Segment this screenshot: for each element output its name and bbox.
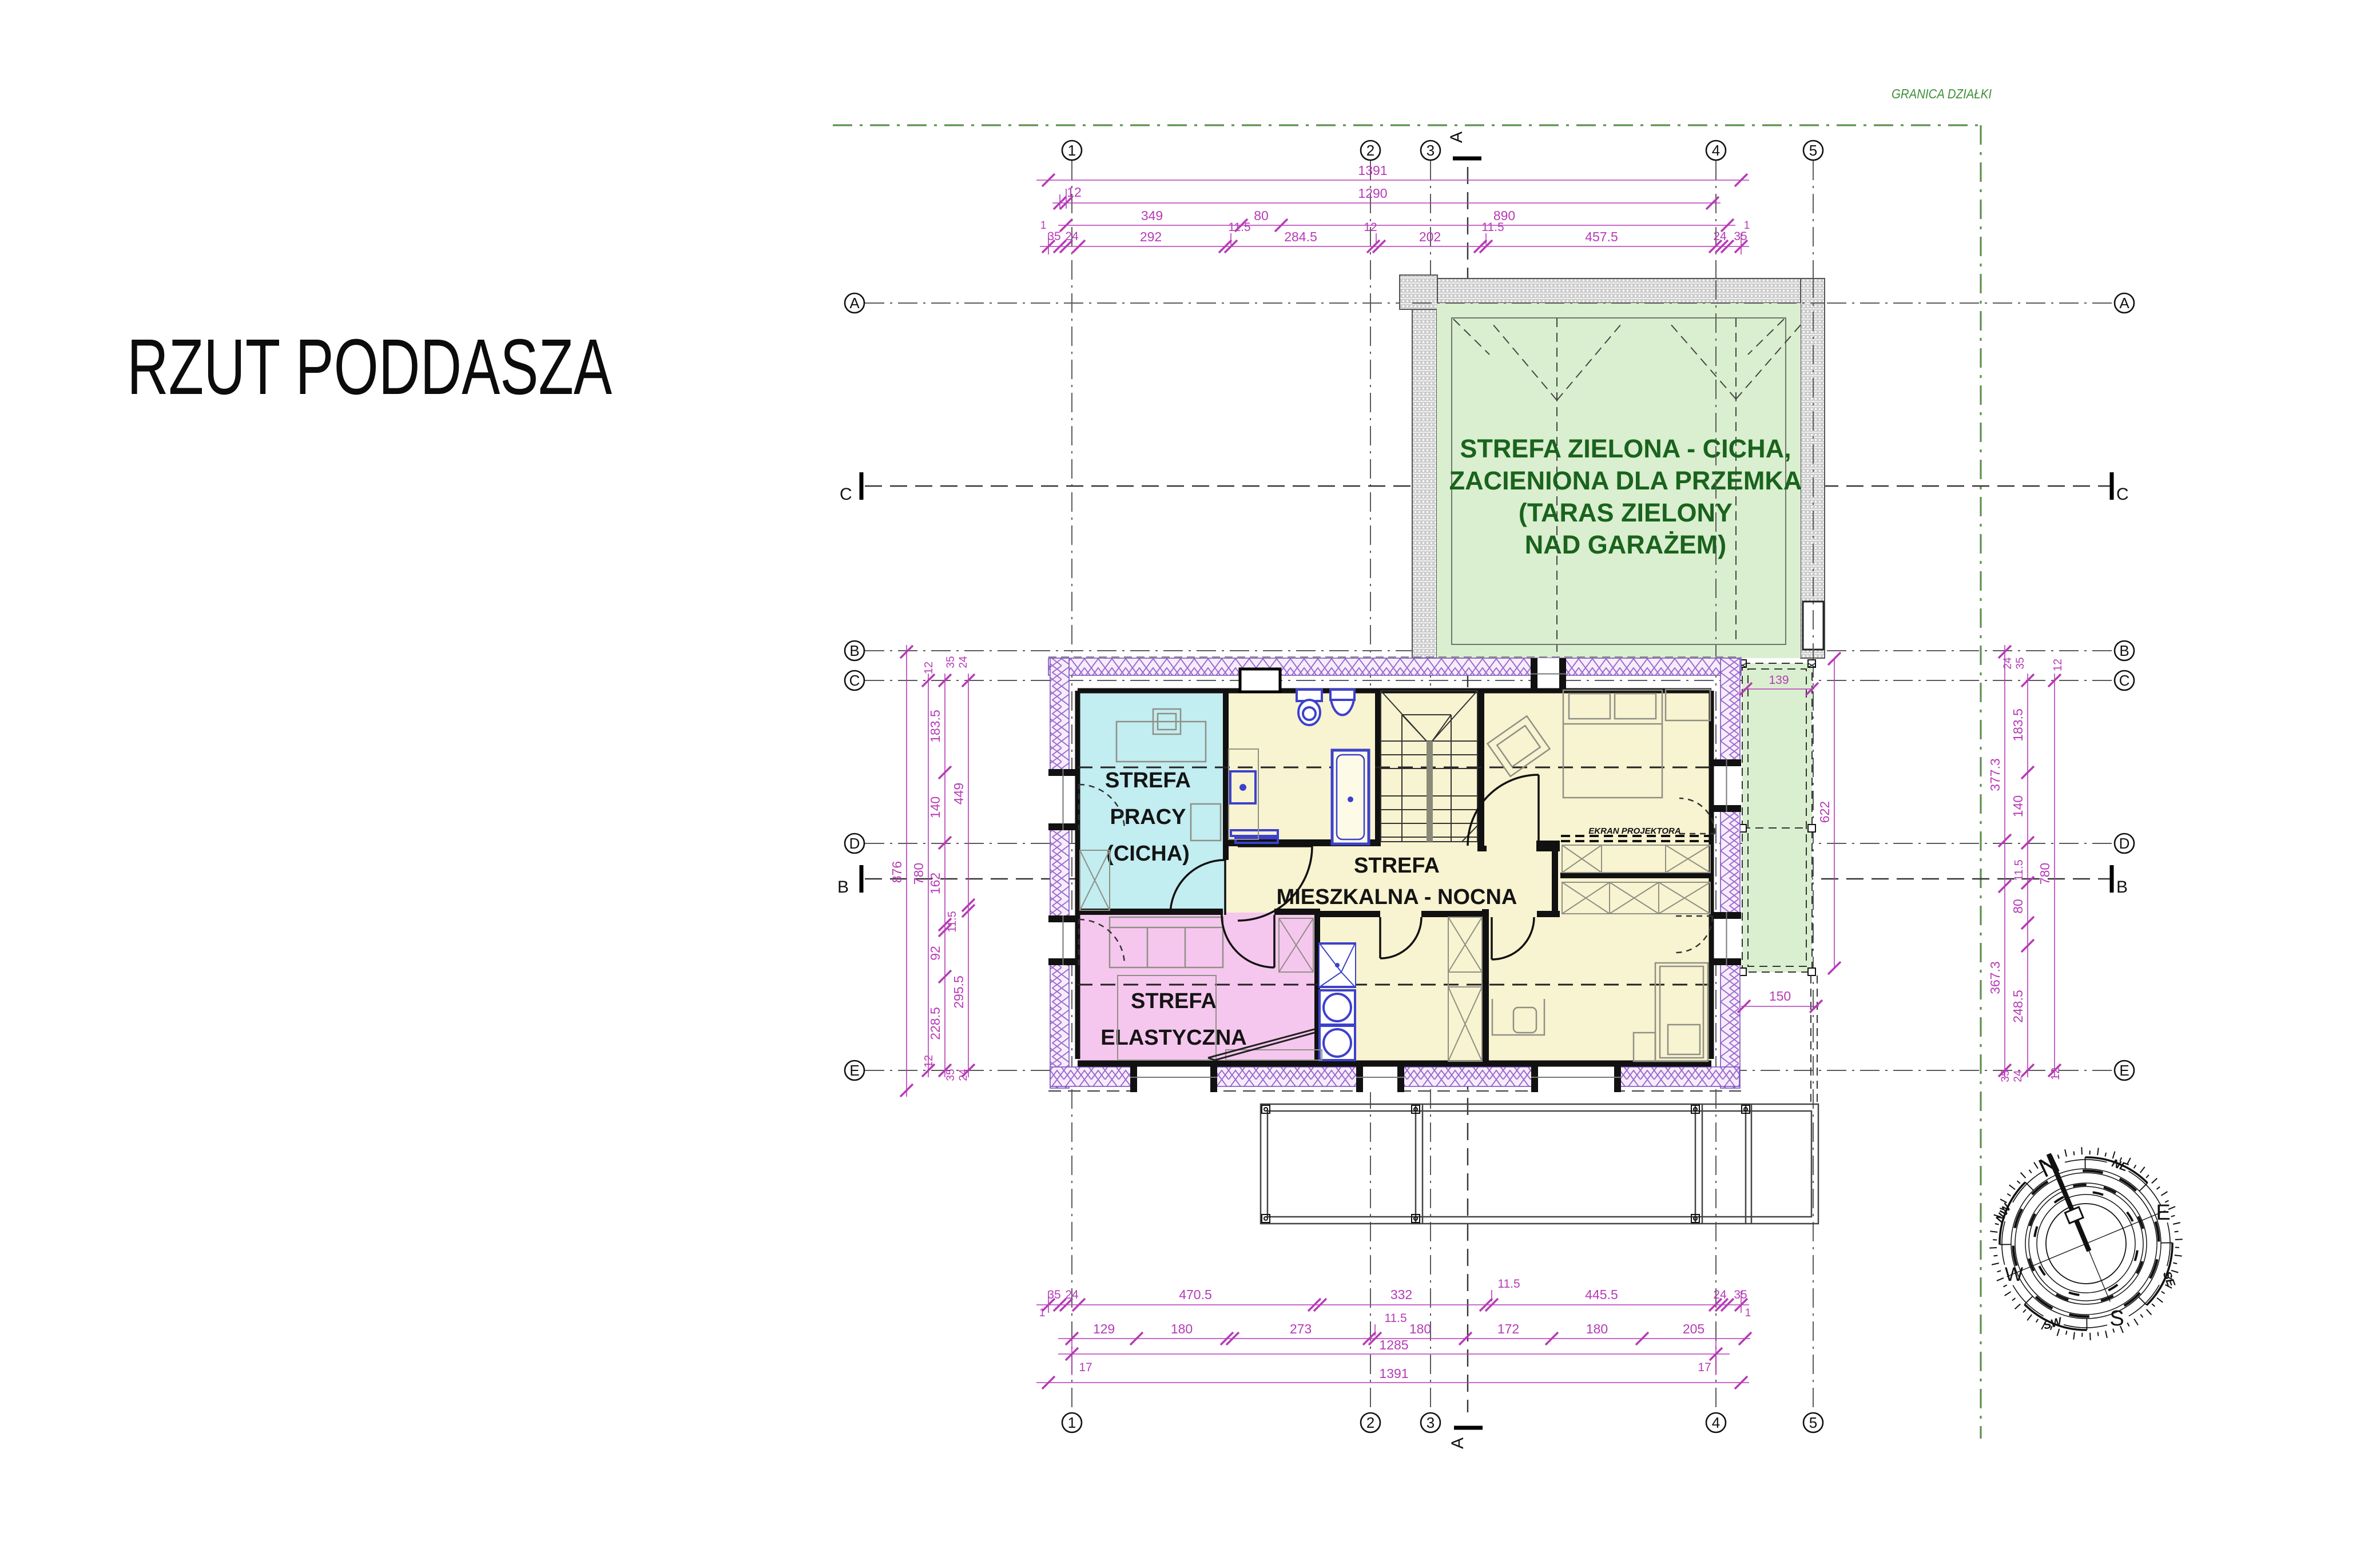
svg-text:W: W xyxy=(2005,1264,2023,1285)
svg-text:MIESZKALNA - NOCNA: MIESZKALNA - NOCNA xyxy=(1277,885,1517,909)
svg-text:24: 24 xyxy=(2002,657,2014,670)
svg-text:35: 35 xyxy=(1047,1288,1060,1301)
svg-text:12: 12 xyxy=(2052,659,2064,671)
svg-text:205: 205 xyxy=(1683,1321,1704,1336)
svg-text:35: 35 xyxy=(1734,230,1747,243)
svg-text:ZACIENIONA DLA PRZEMKA: ZACIENIONA DLA PRZEMKA xyxy=(1449,466,1802,495)
svg-text:E: E xyxy=(849,1062,859,1079)
svg-text:17: 17 xyxy=(1079,1361,1092,1374)
svg-text:1285: 1285 xyxy=(1379,1337,1408,1352)
svg-text:180: 180 xyxy=(1171,1321,1193,1336)
svg-text:24: 24 xyxy=(957,1069,970,1081)
svg-text:139: 139 xyxy=(1769,674,1789,687)
svg-text:1: 1 xyxy=(1744,220,1750,232)
svg-text:80: 80 xyxy=(2011,899,2025,914)
svg-text:12: 12 xyxy=(1364,221,1377,234)
svg-text:24: 24 xyxy=(1065,230,1079,243)
svg-text:12: 12 xyxy=(1067,185,1082,200)
svg-text:E: E xyxy=(2119,1062,2129,1079)
svg-text:1: 1 xyxy=(1040,220,1047,232)
svg-text:(CICHA): (CICHA) xyxy=(1106,842,1190,866)
svg-text:1290: 1290 xyxy=(1358,186,1387,201)
svg-text:11.5: 11.5 xyxy=(946,911,959,932)
svg-text:ELASTYCZNA: ELASTYCZNA xyxy=(1100,1026,1246,1050)
svg-text:STREFA ZIELONA - CICHA,: STREFA ZIELONA - CICHA, xyxy=(1460,434,1791,463)
svg-text:183.5: 183.5 xyxy=(928,710,943,743)
svg-text:GRANICA DZIAŁKI: GRANICA DZIAŁKI xyxy=(1892,86,1992,101)
svg-text:1: 1 xyxy=(1745,1307,1751,1319)
svg-text:D: D xyxy=(2119,835,2130,852)
svg-text:D: D xyxy=(849,835,860,852)
svg-text:4: 4 xyxy=(1712,1414,1720,1431)
svg-text:24: 24 xyxy=(1713,1288,1727,1301)
svg-text:11.5: 11.5 xyxy=(1384,1312,1406,1325)
svg-text:STREFA: STREFA xyxy=(1131,989,1217,1013)
svg-text:162: 162 xyxy=(928,873,943,894)
svg-text:24: 24 xyxy=(2012,1070,2024,1082)
svg-text:449: 449 xyxy=(951,783,966,805)
svg-text:180: 180 xyxy=(1409,1321,1431,1336)
svg-text:332: 332 xyxy=(1390,1287,1412,1302)
svg-text:S: S xyxy=(2109,1307,2124,1331)
svg-text:24: 24 xyxy=(1065,1288,1079,1301)
svg-text:248.5: 248.5 xyxy=(2011,990,2025,1023)
svg-text:150: 150 xyxy=(1769,989,1791,1004)
svg-text:622: 622 xyxy=(1817,801,1832,823)
svg-text:11.5: 11.5 xyxy=(1497,1277,1520,1291)
svg-text:1391: 1391 xyxy=(1358,163,1387,178)
svg-text:A: A xyxy=(2119,294,2129,312)
svg-text:457.5: 457.5 xyxy=(1585,229,1618,244)
svg-text:202: 202 xyxy=(1419,229,1441,244)
svg-text:17: 17 xyxy=(1698,1361,1711,1374)
svg-text:12: 12 xyxy=(2049,1068,2062,1080)
svg-text:35: 35 xyxy=(945,656,957,668)
svg-text:A: A xyxy=(1448,1437,1467,1449)
svg-text:NAD GARAŻEM): NAD GARAŻEM) xyxy=(1525,530,1726,559)
svg-text:183.5: 183.5 xyxy=(2011,708,2025,742)
svg-text:35: 35 xyxy=(1734,1288,1747,1301)
svg-text:295.5: 295.5 xyxy=(951,975,966,1009)
svg-text:35: 35 xyxy=(2000,1070,2012,1082)
svg-text:2: 2 xyxy=(1366,142,1374,159)
svg-text:172: 172 xyxy=(1497,1321,1519,1336)
svg-text:24: 24 xyxy=(1713,230,1727,243)
svg-text:445.5: 445.5 xyxy=(1585,1287,1618,1302)
svg-text:1: 1 xyxy=(1068,142,1076,159)
svg-text:3: 3 xyxy=(1427,142,1435,159)
svg-text:11.5: 11.5 xyxy=(1481,221,1504,234)
svg-text:STREFA: STREFA xyxy=(1354,854,1440,878)
svg-text:470.5: 470.5 xyxy=(1179,1287,1212,1302)
svg-text:11.5: 11.5 xyxy=(2013,859,2025,881)
svg-text:780: 780 xyxy=(2037,863,2052,885)
svg-text:180: 180 xyxy=(1586,1321,1608,1336)
svg-text:3: 3 xyxy=(1427,1414,1435,1431)
svg-text:35: 35 xyxy=(945,1069,957,1081)
svg-text:RZUT PODDASZA: RZUT PODDASZA xyxy=(127,323,612,411)
svg-text:92: 92 xyxy=(928,946,943,961)
svg-text:12: 12 xyxy=(923,1055,935,1068)
svg-text:B: B xyxy=(837,878,849,897)
svg-text:C: C xyxy=(2116,485,2129,504)
svg-text:140: 140 xyxy=(2011,795,2025,817)
svg-text:1: 1 xyxy=(1068,1414,1076,1431)
svg-text:A: A xyxy=(1447,132,1466,143)
svg-text:780: 780 xyxy=(911,863,926,885)
svg-text:876: 876 xyxy=(889,861,904,883)
svg-text:STREFA: STREFA xyxy=(1105,768,1191,793)
svg-text:B: B xyxy=(2119,642,2129,659)
svg-text:367.3: 367.3 xyxy=(1988,961,2002,994)
svg-text:2: 2 xyxy=(1366,1414,1374,1431)
svg-text:(TARAS ZIELONY: (TARAS ZIELONY xyxy=(1519,498,1733,527)
svg-text:80: 80 xyxy=(1254,208,1269,223)
svg-text:B: B xyxy=(2116,878,2128,897)
svg-text:C: C xyxy=(2119,672,2130,689)
svg-text:129: 129 xyxy=(1093,1321,1115,1336)
svg-text:5: 5 xyxy=(1809,1414,1817,1431)
svg-text:273: 273 xyxy=(1290,1321,1312,1336)
svg-text:35: 35 xyxy=(1047,230,1060,243)
svg-text:24: 24 xyxy=(957,656,970,668)
svg-text:11.5: 11.5 xyxy=(1228,221,1250,234)
svg-text:349: 349 xyxy=(1141,208,1163,223)
svg-text:E: E xyxy=(2156,1201,2170,1225)
svg-text:292: 292 xyxy=(1140,229,1162,244)
svg-text:C: C xyxy=(849,672,860,689)
svg-text:1391: 1391 xyxy=(1379,1366,1408,1381)
svg-text:5: 5 xyxy=(1809,142,1817,159)
svg-text:C: C xyxy=(840,485,852,504)
svg-text:EKRAN PROJEKTORA: EKRAN PROJEKTORA xyxy=(1588,826,1680,836)
svg-text:PRACY: PRACY xyxy=(1110,805,1186,829)
svg-text:35: 35 xyxy=(2015,657,2027,669)
svg-text:284.5: 284.5 xyxy=(1284,229,1317,244)
svg-text:228.5: 228.5 xyxy=(928,1007,943,1040)
svg-text:12: 12 xyxy=(923,662,935,674)
svg-text:4: 4 xyxy=(1712,142,1720,159)
svg-text:377.3: 377.3 xyxy=(1988,758,2002,791)
svg-text:B: B xyxy=(849,642,859,659)
svg-text:140: 140 xyxy=(928,797,943,818)
svg-text:1: 1 xyxy=(1039,1307,1046,1319)
svg-text:A: A xyxy=(849,294,860,312)
